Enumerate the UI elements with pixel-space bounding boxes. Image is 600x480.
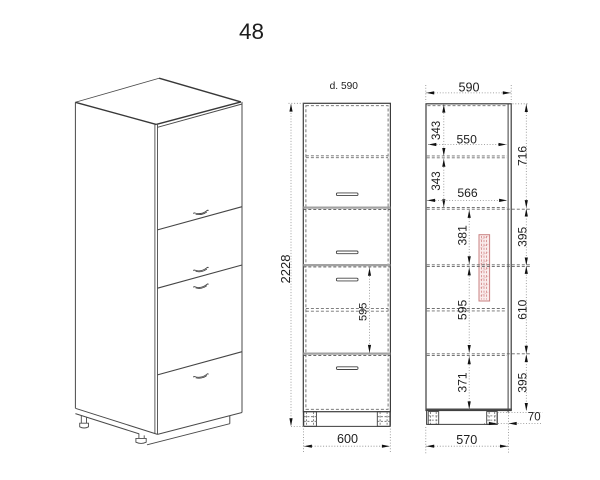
svg-text:595: 595 xyxy=(455,300,469,321)
svg-text:610: 610 xyxy=(516,299,530,319)
svg-text:716: 716 xyxy=(516,146,530,166)
svg-text:600: 600 xyxy=(337,432,358,446)
svg-text:590: 590 xyxy=(458,80,479,94)
svg-text:2228: 2228 xyxy=(278,255,293,284)
svg-text:395: 395 xyxy=(516,226,530,246)
svg-text:595: 595 xyxy=(357,303,369,321)
svg-text:343: 343 xyxy=(431,171,443,190)
svg-text:395: 395 xyxy=(516,372,530,392)
svg-text:570: 570 xyxy=(456,433,477,447)
svg-text:566: 566 xyxy=(457,186,478,200)
svg-text:550: 550 xyxy=(457,132,478,146)
svg-text:371: 371 xyxy=(455,372,469,393)
svg-text:70: 70 xyxy=(528,412,541,424)
svg-text:343: 343 xyxy=(431,121,443,140)
svg-text:381: 381 xyxy=(455,225,469,246)
svg-text:48: 48 xyxy=(239,19,264,44)
svg-text:d. 590: d. 590 xyxy=(330,81,359,92)
